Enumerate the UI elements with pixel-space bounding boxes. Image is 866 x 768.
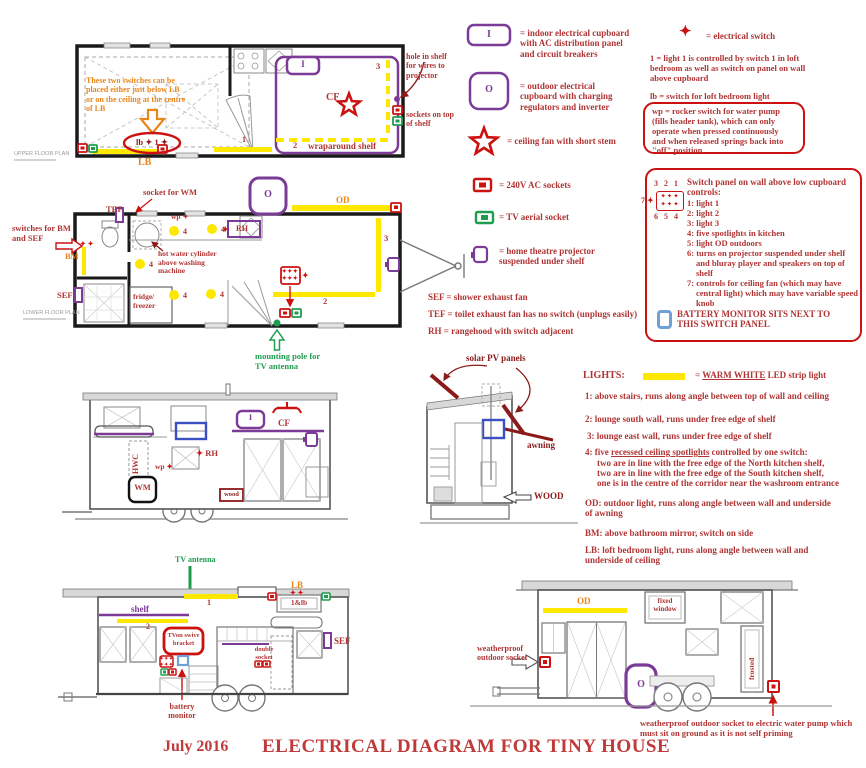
legend-icons <box>468 25 510 262</box>
outdoor-cupboard-label: O <box>626 679 656 691</box>
panel-switch-icon: ✦ <box>302 271 309 280</box>
indoor-cupboard-label: I <box>287 59 319 69</box>
tv-socket-icon <box>393 117 402 125</box>
switch-placement-note: These two switches can be placed either … <box>86 76 188 113</box>
spotlight-icon <box>207 224 217 234</box>
tv-bracket-label: TVon swive bracket <box>166 632 201 647</box>
wheel <box>683 683 711 711</box>
lb-switch-note: lb = switch for loft bedroom light <box>650 92 820 102</box>
ceiling-fan-icon <box>471 128 498 153</box>
lb-light-label: LB <box>138 157 151 169</box>
battery-monitor-label: battery monitor <box>158 702 206 721</box>
mounting-pole-note: mounting pole for TV antenna <box>255 352 327 372</box>
lights-heading: LIGHTS: <box>583 370 625 382</box>
rh-definition: RH = rangehood with switch adjacent <box>428 326 648 336</box>
legend-indoor-text: = indoor electrical cupboard with AC dis… <box>520 28 632 59</box>
antenna-arrow <box>270 330 284 350</box>
panel-digits-top: 3 2 1 <box>654 179 680 188</box>
projector-icon <box>385 258 399 271</box>
ac-socket-icon <box>280 309 290 317</box>
wraparound-shelf-label: wraparound shelf <box>308 141 376 151</box>
legend-indoor-symbol: I <box>468 29 510 41</box>
lights-item-4c: one is in the centre of the corridor nea… <box>597 478 866 488</box>
title-date: July 2016 <box>163 738 228 756</box>
spotlight-label: 4 <box>183 291 187 300</box>
ac-socket-icon <box>169 669 176 675</box>
sef-definition: SEF = shower exhaust fan <box>428 292 648 302</box>
lights-item-1: 1: above stairs, runs along angle betwee… <box>585 391 853 401</box>
legend-outdoor-symbol: O <box>470 84 508 96</box>
lights-item-4a: two are in line with the free edge of th… <box>597 458 866 468</box>
bm-light-label: BM <box>65 252 79 262</box>
battery-monitor-note: BATTERY MONITOR SITS NEXT TO THIS SWITCH… <box>677 309 835 330</box>
roof <box>83 393 337 400</box>
wood-stove-label: wood <box>220 491 243 499</box>
switch-legend-text: = electrical switch <box>706 31 826 41</box>
led-strip-3 <box>376 218 381 292</box>
light1-note: 1 = light 1 is controlled by switch 1 in… <box>650 54 820 84</box>
light1-label: 1 <box>207 598 211 607</box>
tv-socket-icon <box>89 145 97 152</box>
rangehood-label: ✦ RH <box>196 449 218 459</box>
led-strip-2 <box>117 619 188 623</box>
page-title: ELECTRICAL DIAGRAM FOR TINY HOUSE <box>262 736 670 758</box>
cooktop <box>234 49 264 73</box>
frosted-window-label: frosted <box>748 640 757 680</box>
shelf-label: shelf <box>131 604 149 614</box>
spotlight-label: 4 <box>183 227 187 236</box>
projector-icon <box>471 247 487 262</box>
loft-switches-label: lb ✦ 1 ✦ <box>126 138 178 148</box>
hot-water-cylinder <box>135 223 159 247</box>
shower-exhaust-fan-icon <box>75 288 82 302</box>
od-light-label: OD <box>577 596 591 606</box>
lights-od-note: OD: outdoor light, runs along angle betw… <box>585 498 835 519</box>
loft-switch-icons: ✦ ✦ <box>290 589 303 597</box>
base <box>431 505 509 519</box>
weatherproof-socket-label: weatherproof outdoor socket <box>477 644 535 663</box>
spotlight-label: 4 <box>149 260 153 269</box>
od-light-label: OD <box>336 195 350 205</box>
antenna-pole-icon <box>274 320 281 327</box>
fixed-window-label: fixed window <box>648 597 682 613</box>
hole-in-shelf-note: hole in shelf for wires to projector <box>406 52 458 80</box>
switch-panel-glyphs: ✦✦✦✦✦✦ <box>159 657 174 668</box>
wp-note-text: wp = rocker switch for water pump (fills… <box>652 107 794 156</box>
sockets-on-shelf-note: sockets on top of shelf <box>406 110 461 129</box>
light1-label: 1 <box>242 135 246 144</box>
lights-lb-note: LB: loft bedroom light, runs along angle… <box>585 545 847 566</box>
socket-for-wm-note: socket for WM <box>143 188 197 198</box>
roof <box>522 581 792 590</box>
led-strip-1 <box>184 594 238 599</box>
light2-label: 2 <box>146 622 150 631</box>
awning-label: awning <box>527 440 555 450</box>
ac-socket-icon <box>78 144 87 152</box>
indoor-cupboard-label: I <box>237 413 264 423</box>
washing-machine-label: WM <box>129 483 156 493</box>
ceiling-fan-label: CF <box>278 418 290 428</box>
note-arrow <box>141 110 164 133</box>
ceiling-fan-icon <box>338 94 360 115</box>
light2-label: 2 <box>323 297 327 307</box>
ac-socket-icon <box>393 106 402 114</box>
switches-bm-sef-note: switches for BM and SEF <box>12 224 84 244</box>
lower-floor-plan-drawing <box>23 178 464 350</box>
tef-definition: TEF = toilet exhaust fan has no switch (… <box>428 309 663 319</box>
wheel <box>239 685 265 711</box>
wheel <box>212 685 238 711</box>
panel-digit-seven: 7 ✦ <box>641 196 654 205</box>
hwc-label: HWC <box>131 444 140 474</box>
trailer-hitch <box>400 240 456 266</box>
legend-outdoor-text: = outdoor electrical cupboard with charg… <box>520 81 632 112</box>
ac-socket-icon <box>540 657 550 667</box>
legend-tv-text: = TV aerial socket <box>499 212 629 222</box>
spotlight-icon <box>206 289 216 299</box>
rangehood-label: RH <box>236 224 248 233</box>
light3-label: 3 <box>384 234 388 244</box>
pillow <box>271 617 322 628</box>
led-strip-od <box>292 205 396 211</box>
loft-light-switch-label: 1&lb <box>279 599 319 608</box>
ac-socket-icon <box>768 681 779 692</box>
shower-exhaust-fan-icon <box>324 633 331 648</box>
panel-heading: Switch panel on wall above low cupboard … <box>687 177 855 198</box>
led-strip-od <box>543 608 627 613</box>
led-strip-1 <box>214 147 272 152</box>
light2-label: 2 <box>293 141 297 151</box>
tv-socket-icon <box>476 212 493 223</box>
tv-socket-icon <box>161 669 168 675</box>
lights-item-4: 4: five recessed ceiling spotlights cont… <box>585 447 866 457</box>
spotlight-icon <box>135 259 145 269</box>
lights-item-3: 3: lounge east wall, runs under free edg… <box>587 431 855 441</box>
upper-plan-title: UPPER FLOOR PLAN <box>14 151 69 157</box>
electrical-switch-icon: ✦ <box>679 24 692 41</box>
led-strip-bm <box>82 247 86 275</box>
ceiling-fan-label: CF <box>326 92 339 104</box>
wood-label: WOOD <box>534 491 564 501</box>
tv-socket-icon <box>292 309 301 317</box>
lights-bm-note: BM: above bathroom mirror, switch on sid… <box>585 528 835 538</box>
battery-monitor-icon <box>178 656 188 665</box>
ac-socket-icon <box>255 661 262 667</box>
panel-item-6: 6: turns on projector suspended under sh… <box>687 249 858 279</box>
ac-socket-icon <box>263 661 270 667</box>
hot-water-cylinder-note: hot water cylinder above washing machine <box>158 250 232 276</box>
lights-key: = WARM WHITE LED strip light <box>695 370 865 380</box>
fridge-label: fridge/ freezer <box>133 293 171 310</box>
lights-item-4b: two are in line with the free edge of th… <box>597 468 866 478</box>
spotlight-label: 4 <box>221 225 225 234</box>
shelf-hole-icon <box>394 96 400 102</box>
ac-socket-icon <box>391 203 401 212</box>
battery-monitor-icon <box>657 310 672 329</box>
water-pump-caption: weatherproof outdoor socket to electric … <box>640 719 866 739</box>
legend-projector-text: = home theatre projector suspended under… <box>499 246 607 267</box>
lights-item-2: 2: lounge south wall, runs under free ed… <box>585 414 853 424</box>
legend-fan-text: = ceiling fan with short stem <box>507 136 647 146</box>
spotlight-icon <box>169 226 179 236</box>
outdoor-cupboard-label: O <box>250 189 286 201</box>
led-strip-swatch <box>643 373 685 380</box>
wp-switch-label: wp ✦ <box>155 463 173 472</box>
switch-panel-icon: ✦✦✦✦✦✦ <box>656 191 684 211</box>
tv-socket-icon <box>322 593 330 600</box>
switch-panel-glyphs: ✦✦✦✦✦✦ <box>280 269 300 283</box>
spotlight-label: 4 <box>220 290 224 299</box>
rear-elevation-drawing <box>58 566 349 711</box>
tef-label: TEF <box>106 205 123 215</box>
wheel <box>654 683 682 711</box>
sef-label: SEF <box>334 636 351 646</box>
sef-label: SEF <box>57 291 73 301</box>
electrical-diagram-canvas: These two switches can be placed either … <box>0 0 866 768</box>
light3-label: 3 <box>376 62 380 72</box>
double-socket-label: double socket <box>246 646 282 661</box>
panel-item-7: 7: controls for ceiling fan (which may h… <box>687 279 864 309</box>
ac-socket-icon <box>268 593 276 600</box>
legend-socket-text: = 240V AC sockets <box>499 180 629 190</box>
bm-sef-switch-icons: ✦ ✦ <box>80 240 93 248</box>
tv-antenna-label: TV antenna <box>175 555 216 564</box>
panel-digits-bottom: 6 5 4 <box>654 212 680 221</box>
wp-switch-label: wp ✦ <box>171 213 189 222</box>
solar-panels-label: solar PV panels <box>466 353 526 363</box>
projector-icon <box>303 433 317 446</box>
ac-socket-icon <box>474 179 491 191</box>
lower-plan-title: LOWER FLOOR PLAN <box>23 310 80 316</box>
